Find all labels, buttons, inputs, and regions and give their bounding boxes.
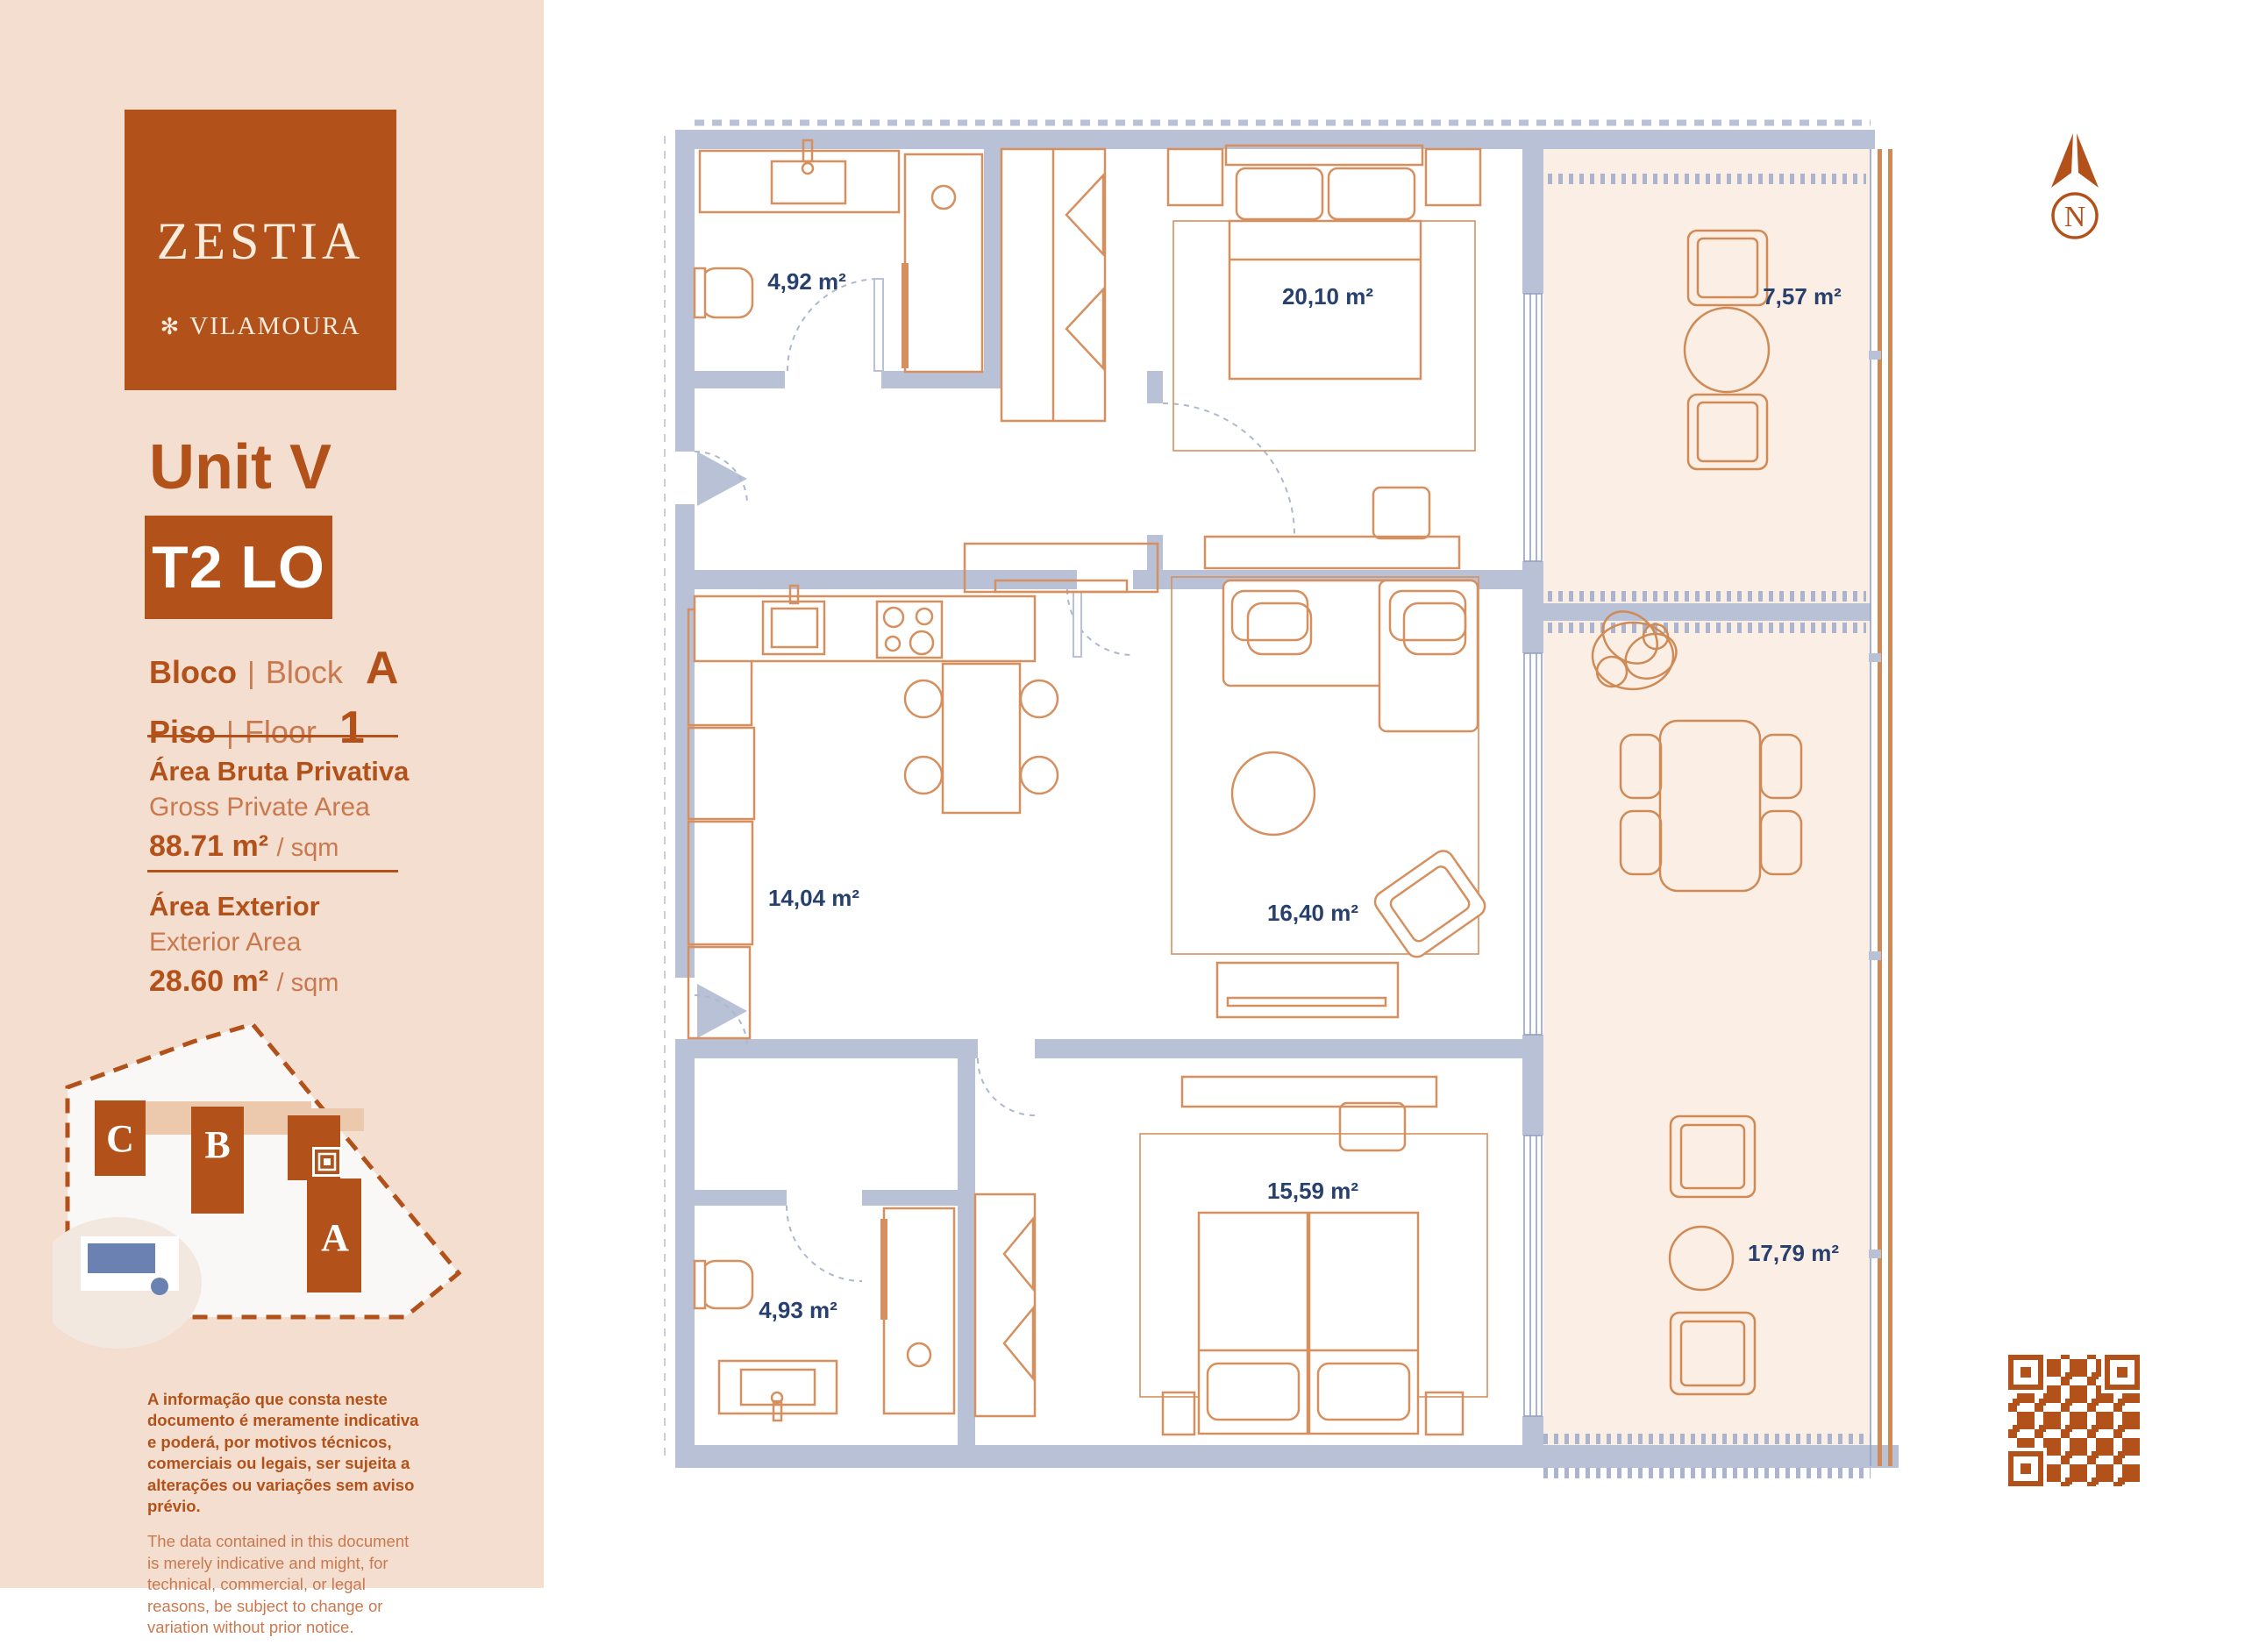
room-area-label: 4,92 m²	[767, 268, 846, 295]
block-c-label: C	[106, 1117, 134, 1160]
entry-arrow-icon	[697, 984, 747, 1038]
brand-title: ZESTIA	[125, 211, 396, 272]
gross-area-value: 88.71 m²	[149, 830, 268, 863]
unit-type-badge: T2 LO	[145, 516, 332, 619]
gross-area-label-en: Gross Private Area	[149, 793, 409, 822]
sidebar: ZESTIA ✻ VILAMOURA Unit V T2 LO Bloco | …	[0, 0, 544, 1588]
floor-separator: |	[226, 716, 234, 751]
divider	[147, 870, 398, 872]
block-value: A	[366, 642, 399, 694]
block-a-label: A	[321, 1216, 349, 1259]
floor-label-pt: Piso	[149, 714, 216, 751]
living-room-furniture	[1172, 577, 1489, 1017]
unit-specs: Bloco | Block A Piso | Floor 1	[149, 642, 398, 761]
exterior-area-block: Área Exterior Exterior Area 28.60 m² / s…	[149, 891, 339, 999]
pool-spa	[151, 1278, 168, 1295]
room-area-label: 20,10 m²	[1282, 283, 1373, 310]
unit-title: Unit V	[149, 431, 331, 503]
floor-row: Piso | Floor 1	[149, 701, 398, 754]
block-separator: |	[247, 657, 255, 691]
bathroom-1-fixtures	[695, 140, 982, 372]
exterior-area-suffix: / sqm	[277, 969, 339, 997]
window-glazing	[1524, 294, 1542, 1416]
kitchen-furniture	[688, 544, 1158, 1038]
brand-subtitle: VILAMOURA	[189, 312, 360, 341]
room-area-label: 7,57 m²	[1763, 283, 1842, 310]
room-area-label: 14,04 m²	[768, 885, 859, 911]
site-map: C B A	[53, 1015, 491, 1375]
room-area-label: 15,59 m²	[1267, 1178, 1358, 1204]
exterior-area-label-en: Exterior Area	[149, 928, 339, 958]
terrace-railing	[1869, 149, 1892, 1466]
qr-code	[2005, 1351, 2143, 1490]
bedroom-2-furniture	[975, 1077, 1487, 1435]
unit-location-marker	[312, 1147, 342, 1177]
floor-label-en: Floor	[245, 714, 317, 751]
disclaimer-en: The data contained in this document is m…	[147, 1531, 419, 1638]
brand-asterisk-icon: ✻	[160, 314, 181, 340]
block-label-en: Block	[266, 654, 343, 691]
room-area-label: 17,79 m²	[1748, 1240, 1839, 1266]
block-label-pt: Bloco	[149, 654, 237, 691]
gross-area-label-pt: Área Bruta Privativa	[149, 756, 409, 787]
room-area-label: 16,40 m²	[1267, 900, 1358, 926]
room-area-label: 4,93 m²	[759, 1297, 837, 1323]
pool	[88, 1243, 155, 1273]
floor-value: 1	[339, 701, 365, 754]
block-row: Bloco | Block A	[149, 642, 398, 694]
divider	[147, 735, 398, 737]
gross-area-suffix: / sqm	[277, 834, 339, 862]
compass-north-label: N	[2064, 201, 2086, 233]
brand-subtitle-row: ✻ VILAMOURA	[125, 312, 396, 341]
exterior-area-value-row: 28.60 m² / sqm	[149, 965, 339, 999]
master-bedroom-furniture	[1001, 146, 1480, 568]
exterior-area-value: 28.60 m²	[149, 965, 268, 998]
north-compass: N	[2051, 133, 2099, 238]
disclaimer: A informação que consta neste documento …	[147, 1389, 419, 1652]
disclaimer-pt: A informação que consta neste documento …	[147, 1389, 419, 1517]
exterior-area-label-pt: Área Exterior	[149, 891, 339, 922]
gross-area-block: Área Bruta Privativa Gross Private Area …	[149, 756, 409, 864]
brand-logo: ZESTIA ✻ VILAMOURA	[125, 110, 396, 390]
gross-area-value-row: 88.71 m² / sqm	[149, 830, 409, 864]
block-b-label: B	[204, 1123, 230, 1166]
